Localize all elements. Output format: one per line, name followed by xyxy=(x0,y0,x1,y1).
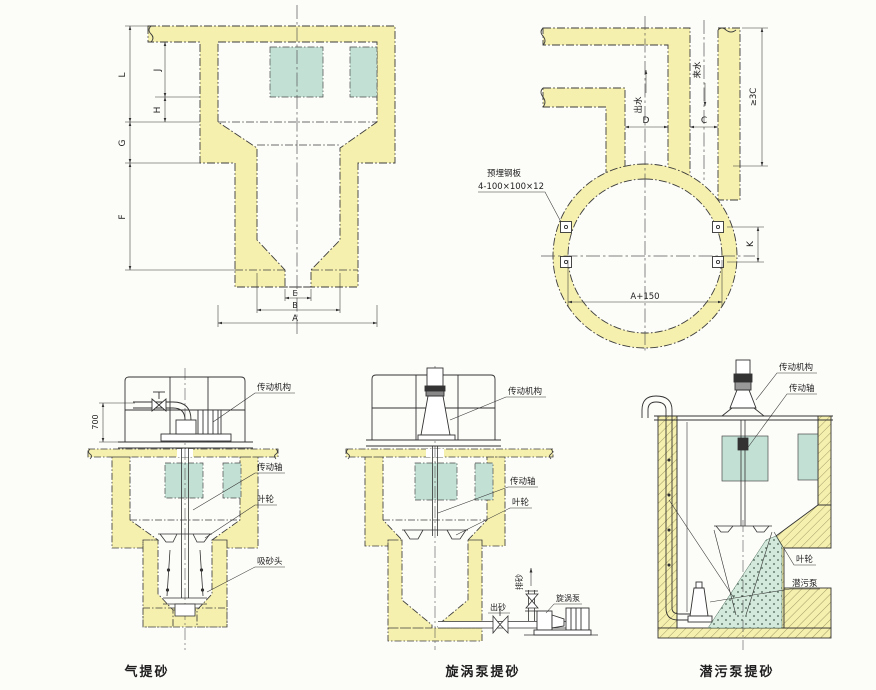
note-line1: 预埋钢板 xyxy=(487,168,522,179)
figure-caption-airlift: 气提砂 xyxy=(92,661,202,680)
pump-label: 旋涡泵 xyxy=(556,593,580,603)
dim-label-D: D xyxy=(643,116,650,126)
vortex-view-drawing: 传动机构 传动轴 叶轮 出砂 排砂 旋涡泵 xyxy=(338,358,638,658)
dim-label-C: C xyxy=(701,116,707,126)
figure-caption-submersible: 潜污泵提砂 xyxy=(682,661,792,680)
flow-opening xyxy=(165,463,203,498)
flow-opening xyxy=(798,434,818,480)
leader-line xyxy=(213,393,295,422)
drive-label: 传动机构 xyxy=(508,386,542,397)
embedded-plates xyxy=(561,222,724,268)
suction-head-label: 吸砂头 xyxy=(257,556,283,567)
valve-icon xyxy=(493,616,508,633)
dim-label-B: B xyxy=(292,301,298,310)
dim-label-A: A xyxy=(292,314,298,324)
dim-label-G: G xyxy=(118,139,128,146)
submersible-drive-unit xyxy=(718,360,768,416)
leader-line xyxy=(478,192,561,222)
plan-view-drawing: D C 出水 来水 ≥3C K A+150 预埋钢板 4-100×100×12 xyxy=(465,8,795,353)
airlift-dimension-700 xyxy=(99,403,135,442)
embedded-plate-note: 预埋钢板 4-100×100×12 xyxy=(478,168,561,222)
dim-label-L: L xyxy=(118,72,128,77)
dim-label-J: J xyxy=(153,69,163,73)
sand-outlet-label: 出砂 xyxy=(490,602,506,612)
flow-opening xyxy=(415,463,457,500)
drive-label: 传动机构 xyxy=(779,362,813,373)
vortex-drive-unit xyxy=(418,368,455,440)
dim-label-H: H xyxy=(153,107,163,114)
shaft-label: 传动轴 xyxy=(789,383,815,394)
submersible-pump-unit xyxy=(688,582,712,622)
pipe-elbow xyxy=(173,402,191,420)
airlift-drive-unit xyxy=(133,392,231,441)
dim-label-a150: A+150 xyxy=(630,292,659,302)
shaft-label: 传动轴 xyxy=(257,462,283,473)
engineering-drawing-canvas: L J H G F E B A xyxy=(0,0,876,690)
shaft-label: 传动轴 xyxy=(510,476,536,487)
airlift-view-drawing: 700 传动机构 传动轴 叶轮 吸砂头 xyxy=(63,358,323,658)
valve-icon xyxy=(152,399,166,411)
impeller-label: 叶轮 xyxy=(796,554,814,565)
flow-opening xyxy=(350,47,377,97)
pump-label: 潜污泵 xyxy=(792,578,818,589)
flow-opening xyxy=(270,47,323,97)
impeller-blades xyxy=(716,526,769,532)
drive-label: 传动机构 xyxy=(257,382,291,393)
section-concrete xyxy=(148,26,395,287)
riser-label: 排砂 xyxy=(514,574,524,590)
airlift-concrete xyxy=(88,449,278,627)
figure-caption-vortex: 旋涡泵提砂 xyxy=(428,661,538,680)
dim-label-K: K xyxy=(746,240,756,247)
impeller-label: 叶轮 xyxy=(512,497,530,508)
vortex-labels: 传动机构 传动轴 叶轮 出砂 排砂 旋涡泵 xyxy=(438,386,582,613)
dim-label-700: 700 xyxy=(91,414,100,429)
dim-label-E: E xyxy=(292,289,297,298)
submersible-view-drawing: 传动机构 传动轴 叶轮 潜污泵 xyxy=(616,350,876,668)
flow-out-label: 出水 xyxy=(633,96,644,114)
impeller-label: 叶轮 xyxy=(257,494,275,505)
flow-in-label: 来水 xyxy=(692,61,703,79)
pump-discharge-pipe xyxy=(642,396,690,620)
dim-label-F: F xyxy=(118,214,128,219)
dim-label-clearance: ≥3C xyxy=(749,88,759,107)
section-view-drawing: L J H G F E B A xyxy=(105,5,405,345)
leader-line xyxy=(450,397,546,420)
note-line2: 4-100×100×12 xyxy=(478,182,544,192)
flow-opening xyxy=(223,463,241,498)
flow-opening xyxy=(475,463,493,500)
check-valve-icon xyxy=(526,594,538,608)
